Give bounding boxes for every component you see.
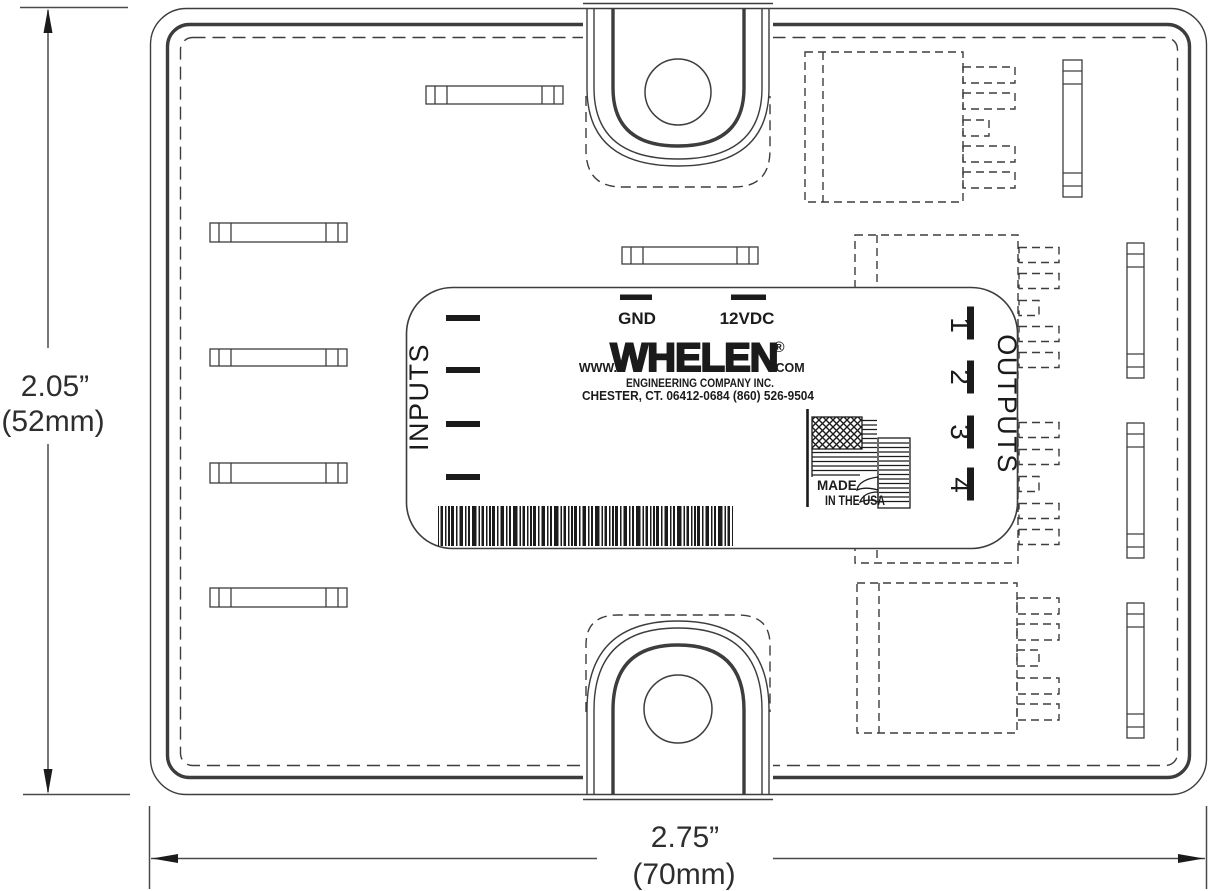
12vdc-label: 12VDC bbox=[720, 309, 775, 328]
input-tick bbox=[446, 421, 480, 427]
company-address: CHESTER, CT. 06412-0684 (860) 526-9504 bbox=[582, 389, 814, 403]
vent-slot-vertical bbox=[1127, 423, 1144, 558]
outputs-title: OUTPUTS bbox=[992, 334, 1022, 474]
flag-canton bbox=[812, 417, 862, 449]
vent-slot-vertical bbox=[1127, 243, 1144, 378]
vent-slot-vertical bbox=[1127, 603, 1144, 738]
mounting-hole-top bbox=[645, 59, 711, 125]
vent-slot bbox=[426, 86, 563, 104]
made-in-usa-line2: IN THE USA bbox=[825, 493, 885, 508]
gnd-label: GND bbox=[618, 309, 656, 328]
vent-slot bbox=[210, 588, 347, 607]
company-name: ENGINEERING COMPANY INC. bbox=[626, 376, 774, 390]
whelen-module-drawing: 2.05” (52mm) 2.75” (70mm) bbox=[0, 0, 1214, 891]
brand-wordmark: WHELEN bbox=[610, 336, 777, 380]
url-suffix: .COM bbox=[772, 361, 805, 375]
output-tick bbox=[967, 361, 974, 394]
inputs-title: INPUTS bbox=[404, 343, 434, 451]
registered-mark-icon: ® bbox=[773, 339, 784, 356]
mounting-hole-bottom bbox=[644, 675, 712, 743]
bottom-mounting-tab bbox=[583, 615, 773, 800]
output-tick bbox=[967, 468, 974, 501]
input-tick bbox=[446, 474, 480, 480]
technical-drawing-page: 2.05” (52mm) 2.75” (70mm) bbox=[0, 0, 1214, 891]
vent-slot-vertical bbox=[1063, 60, 1082, 197]
vent-slot bbox=[210, 223, 347, 242]
output-tick bbox=[967, 416, 974, 449]
made-in-usa-line1: MADE bbox=[817, 478, 857, 493]
input-tick bbox=[446, 367, 480, 373]
12vdc-tick bbox=[731, 295, 766, 301]
vent-slot bbox=[622, 247, 758, 264]
output-tick bbox=[967, 307, 974, 340]
vent-slot bbox=[210, 463, 347, 483]
dimension-width-inches: 2.75” bbox=[651, 821, 719, 854]
gnd-tick bbox=[620, 295, 652, 301]
product-label: INPUTS GND 12VDC WWW. WHELEN ® .COM ENGI… bbox=[404, 288, 1022, 549]
dimension-width-mm: (70mm) bbox=[632, 858, 735, 891]
dimension-height-mm: (52mm) bbox=[1, 405, 104, 438]
input-tick bbox=[446, 315, 480, 321]
barcode bbox=[438, 506, 733, 546]
dimension-height-inches: 2.05” bbox=[21, 370, 89, 403]
vent-slot bbox=[210, 349, 347, 366]
